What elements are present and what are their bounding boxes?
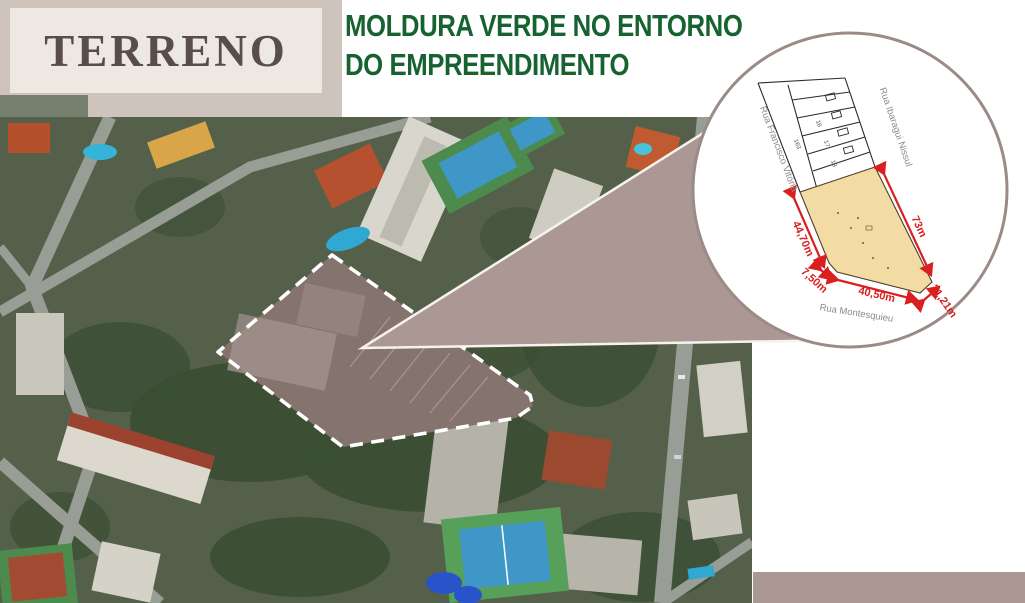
aerial-photo [0, 117, 752, 603]
survey-inset: 163 16 17 18 44,70m 7,50m 40,50m 21,21m … [688, 28, 1012, 352]
page-title: TERRENO [44, 25, 288, 77]
bottom-right-strip [753, 572, 1025, 603]
heading-line1: MOLDURA VERDE NO ENTORNO [345, 6, 742, 45]
title-box: TERRENO [10, 8, 322, 93]
heading-line2: DO EMPREENDIMENTO [345, 45, 629, 84]
accent-square [0, 95, 88, 117]
slide: TERRENO MOLDURA VERDE NO ENTORNO DO EMPR… [0, 0, 1025, 603]
